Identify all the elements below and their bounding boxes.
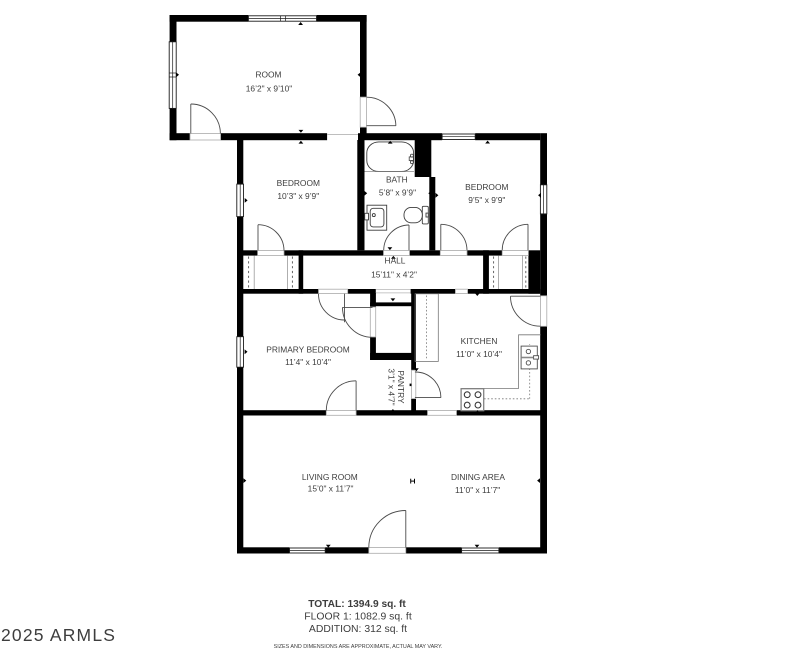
- svg-text:9’5" x 9’9": 9’5" x 9’9": [468, 195, 505, 205]
- svg-text:BEDROOM: BEDROOM: [277, 178, 320, 188]
- svg-text:KITCHEN: KITCHEN: [461, 336, 498, 346]
- svg-text:11’0" x 10’4": 11’0" x 10’4": [456, 349, 502, 359]
- svg-text:2025 ARMLS: 2025 ARMLS: [1, 625, 116, 645]
- svg-text:PANTRY: PANTRY: [396, 370, 406, 404]
- svg-text:5’8" x 9’9": 5’8" x 9’9": [379, 188, 416, 198]
- svg-text:FLOOR 1: 1082.9 sq. ft: FLOOR 1: 1082.9 sq. ft: [304, 612, 412, 623]
- svg-text:3’1" x 4’7": 3’1" x 4’7": [386, 368, 396, 405]
- svg-text:SIZES AND DIMENSIONS ARE APPRO: SIZES AND DIMENSIONS ARE APPROXIMATE, AC…: [274, 644, 443, 650]
- svg-text:BATH: BATH: [386, 175, 408, 185]
- svg-text:15’11" x 4’2": 15’11" x 4’2": [371, 269, 417, 279]
- svg-text:15’0" x 11’7": 15’0" x 11’7": [308, 484, 354, 494]
- svg-text:PRIMARY BEDROOM: PRIMARY BEDROOM: [266, 344, 349, 354]
- svg-text:10’3" x 9’9": 10’3" x 9’9": [277, 191, 319, 201]
- svg-text:ADDITION: 312 sq. ft: ADDITION: 312 sq. ft: [309, 624, 407, 635]
- svg-text:11’4" x 10’4": 11’4" x 10’4": [285, 357, 331, 367]
- svg-text:HALL: HALL: [385, 256, 406, 266]
- svg-text:16’2" x 9’10": 16’2" x 9’10": [246, 84, 292, 94]
- svg-text:DINING AREA: DINING AREA: [451, 472, 505, 482]
- svg-text:LIVING ROOM: LIVING ROOM: [302, 472, 358, 482]
- svg-text:BEDROOM: BEDROOM: [465, 182, 508, 192]
- svg-text:ROOM: ROOM: [255, 70, 281, 80]
- svg-text:11’0" x 11’7": 11’0" x 11’7": [455, 485, 500, 495]
- svg-text:TOTAL: 1394.9 sq. ft: TOTAL: 1394.9 sq. ft: [308, 599, 406, 610]
